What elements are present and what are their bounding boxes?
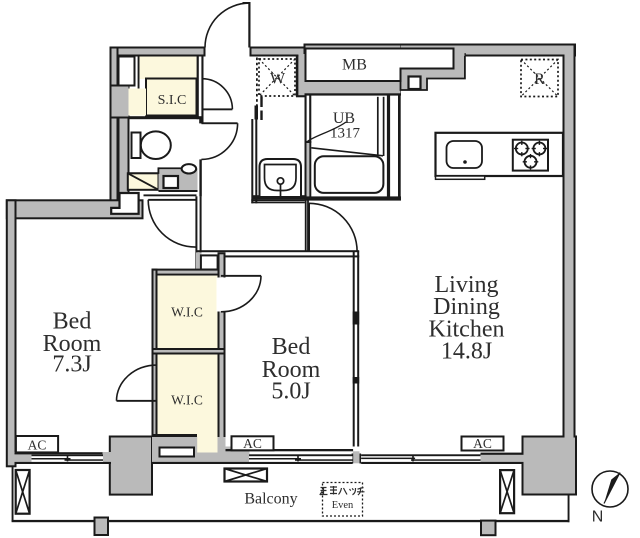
svg-text:AC: AC: [473, 436, 492, 451]
svg-text:R: R: [534, 71, 545, 88]
svg-text:UB: UB: [333, 110, 355, 127]
svg-text:7.3J: 7.3J: [52, 352, 91, 378]
svg-text:W.I.C: W.I.C: [171, 305, 203, 320]
svg-text:N: N: [592, 509, 604, 526]
svg-text:AC: AC: [28, 438, 47, 453]
svg-text:Even: Even: [332, 500, 354, 511]
svg-text:14.8J: 14.8J: [441, 339, 492, 365]
svg-text:W.I.C: W.I.C: [171, 393, 203, 408]
svg-text:W: W: [270, 71, 286, 88]
svg-text:AC: AC: [243, 436, 262, 451]
svg-text:MB: MB: [342, 57, 367, 74]
svg-text:Balcony: Balcony: [244, 491, 297, 508]
svg-text:5.0J: 5.0J: [271, 379, 310, 405]
svg-text:S.I.C: S.I.C: [158, 93, 187, 108]
